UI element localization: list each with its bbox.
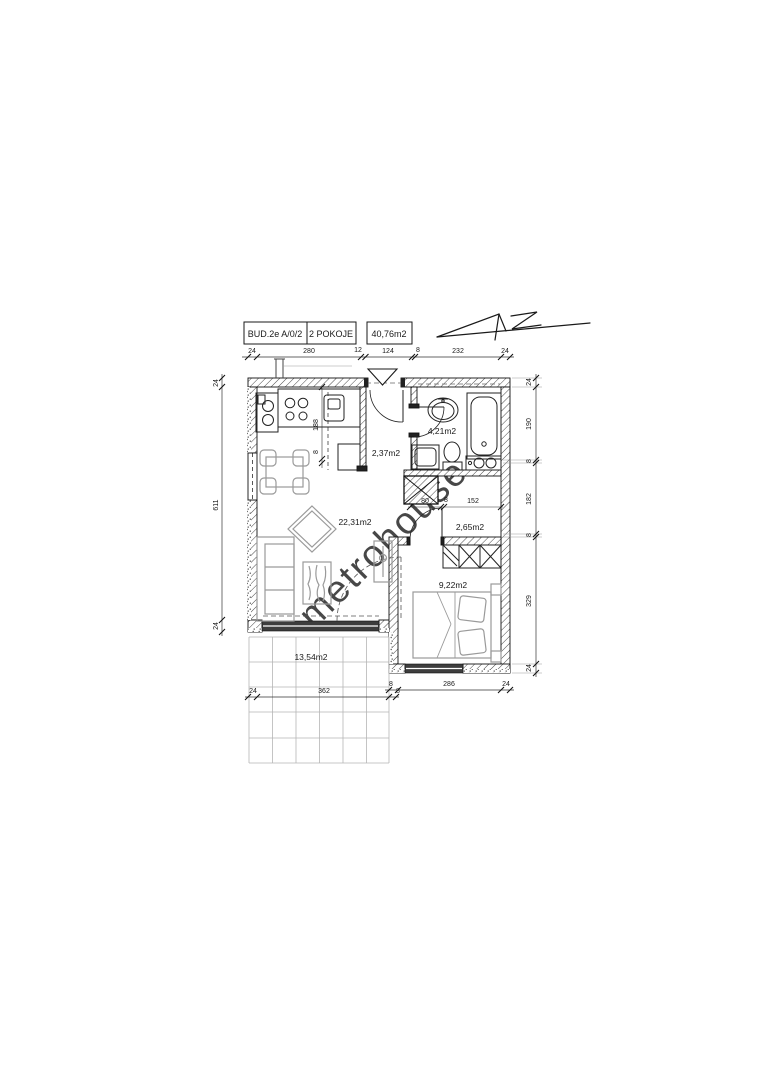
svg-text:124: 124 xyxy=(382,348,394,355)
svg-text:280: 280 xyxy=(303,348,315,355)
entrance-hall-area-label: 2,37m2 xyxy=(372,448,401,458)
neighbour-wall-stub xyxy=(274,359,352,378)
bedroom-window xyxy=(405,664,463,673)
dimension-chain-kitchen: 188 8 xyxy=(313,384,325,468)
svg-text:152: 152 xyxy=(467,498,479,505)
svg-text:24: 24 xyxy=(526,378,533,386)
entrance-door xyxy=(364,369,405,422)
sofa xyxy=(257,537,294,621)
svg-text:24: 24 xyxy=(249,688,257,695)
svg-text:611: 611 xyxy=(213,499,220,510)
bathtub-icon xyxy=(467,393,501,459)
svg-text:329: 329 xyxy=(526,595,533,607)
title-rooms: 2 POKOJE xyxy=(309,329,353,339)
svg-text:8: 8 xyxy=(313,450,320,454)
north-arrow-icon xyxy=(437,312,590,340)
svg-text:8: 8 xyxy=(416,347,420,354)
bedroom-area-label: 9,22m2 xyxy=(439,580,468,590)
svg-text:24: 24 xyxy=(502,681,510,688)
floor-plan-drawing: metrohouse BUD.2e A/0/2 2 POKOJE 40,76m2 xyxy=(0,0,763,1080)
svg-text:190: 190 xyxy=(526,418,533,430)
bathroom-fixtures xyxy=(412,393,501,470)
svg-text:80: 80 xyxy=(421,498,429,505)
svg-text:8: 8 xyxy=(526,459,533,463)
stove-icon xyxy=(285,398,308,420)
svg-text:24: 24 xyxy=(213,622,220,630)
bedroom-furniture xyxy=(413,584,501,662)
left-wall-window xyxy=(248,453,257,500)
svg-text:24: 24 xyxy=(213,379,220,387)
nightstand xyxy=(491,584,501,595)
dimension-chain-top: 24 280 12 124 8 232 24 xyxy=(242,347,514,360)
rug xyxy=(288,506,336,552)
bathroom-area-label: 4,21m2 xyxy=(428,426,457,436)
dining-set xyxy=(260,450,309,494)
svg-text:232: 232 xyxy=(452,348,464,355)
svg-text:8: 8 xyxy=(389,681,393,688)
svg-text:24: 24 xyxy=(501,348,509,355)
svg-text:182: 182 xyxy=(526,493,533,505)
svg-text:24: 24 xyxy=(248,348,256,355)
washbasin-icon xyxy=(428,398,458,422)
floor-plan-page: metrohouse BUD.2e A/0/2 2 POKOJE 40,76m2 xyxy=(0,0,763,1080)
kitchen-sink-unit xyxy=(256,393,278,432)
bedroom-wardrobe xyxy=(443,545,501,568)
dimension-chain-bedroom-bottom: 8 286 24 xyxy=(385,681,514,693)
terrace-area-label: 13,54m2 xyxy=(294,652,327,662)
svg-text:188: 188 xyxy=(313,419,320,431)
title-total-area: 40,76m2 xyxy=(371,329,406,339)
bed xyxy=(413,592,491,658)
kitchen-fixtures xyxy=(256,389,360,470)
svg-text:286: 286 xyxy=(443,681,455,688)
vanity-unit xyxy=(466,456,501,470)
entrance-marker-icon xyxy=(368,369,397,385)
svg-text:362: 362 xyxy=(318,688,330,695)
svg-text:8: 8 xyxy=(526,533,533,537)
title-building: BUD.2e A/0/2 xyxy=(248,329,303,339)
dimension-chain-left: 24 611 24 xyxy=(213,374,225,636)
svg-text:24: 24 xyxy=(526,664,533,672)
corridor-area-label: 2,65m2 xyxy=(456,522,485,532)
svg-text:8: 8 xyxy=(396,688,400,695)
nightstand xyxy=(491,651,501,662)
dimension-chain-terrace: 24 362 8 xyxy=(245,688,400,700)
living-kitchen-area-label: 22,31m2 xyxy=(338,517,371,527)
svg-text:8: 8 xyxy=(444,497,448,504)
svg-text:12: 12 xyxy=(354,347,362,354)
